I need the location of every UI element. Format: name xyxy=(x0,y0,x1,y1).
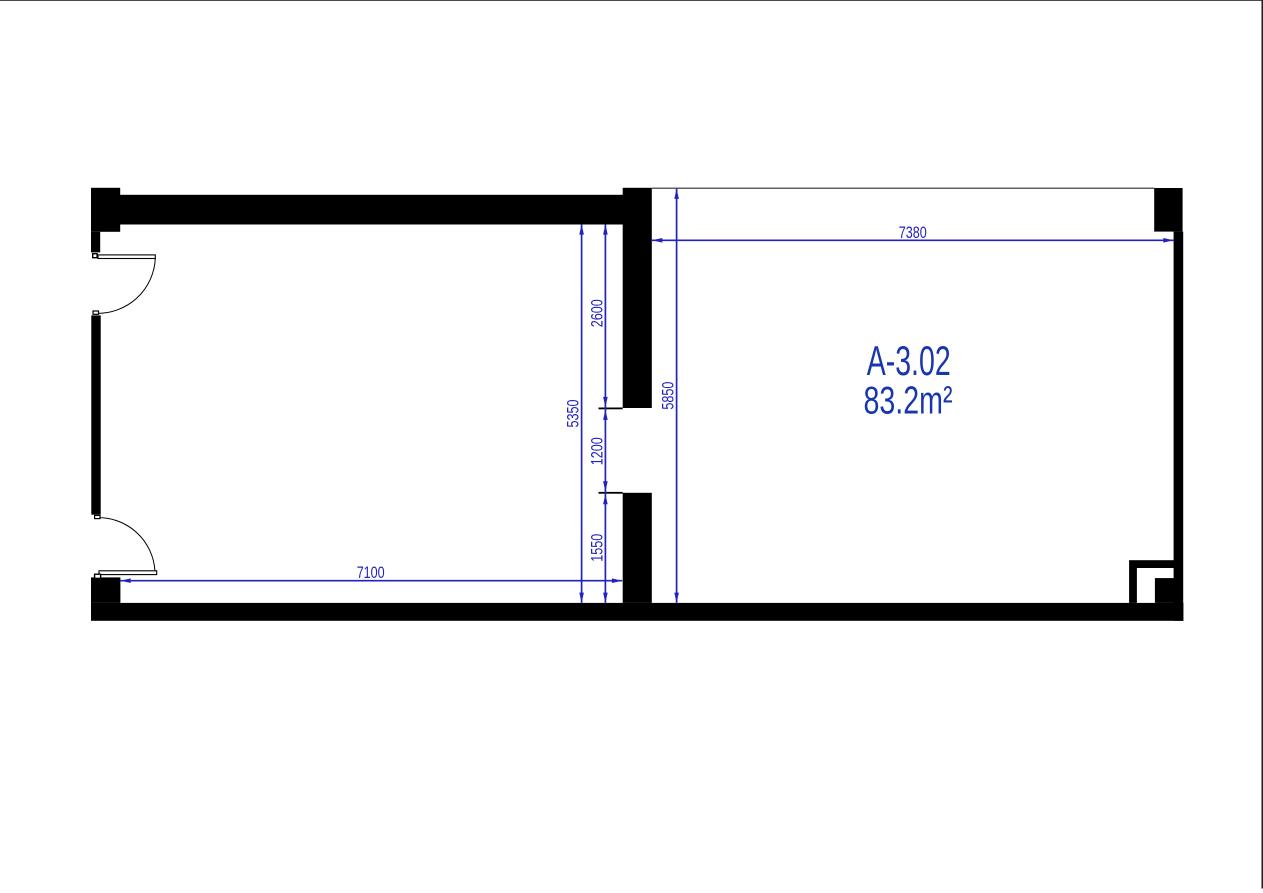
svg-text:7380: 7380 xyxy=(899,224,927,242)
svg-text:1200: 1200 xyxy=(589,437,607,465)
svg-text:7100: 7100 xyxy=(357,564,385,582)
svg-text:A-3.02: A-3.02 xyxy=(867,338,951,384)
svg-text:5850: 5850 xyxy=(660,382,678,410)
svg-text:1550: 1550 xyxy=(589,534,607,562)
svg-text:2600: 2600 xyxy=(589,299,607,327)
svg-text:5350: 5350 xyxy=(565,400,583,428)
svg-text:83.2m²: 83.2m² xyxy=(864,379,953,422)
